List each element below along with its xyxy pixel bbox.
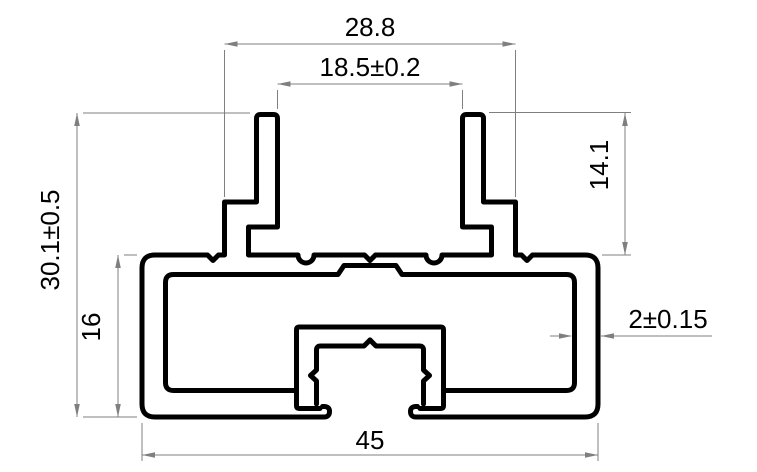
- dim-fin-height-label: 14.1: [584, 140, 614, 191]
- dim-overall-width-label: 45: [356, 425, 385, 455]
- profile-outer-contour: [370, 115, 598, 418]
- dim-overall-width: 45: [142, 423, 598, 461]
- dim-fin-slot-width: 18.5±0.2: [278, 52, 463, 109]
- dim-overall-height-label: 30.1±0.5: [35, 189, 65, 290]
- dim-body-height: 16: [76, 255, 137, 417]
- dim-fin-outer-width: 28.8: [225, 12, 516, 197]
- dim-fin-slot-width-label: 18.5±0.2: [319, 52, 420, 82]
- channel-outer-wall: [370, 327, 444, 409]
- profile-mirrored-half: [142, 115, 370, 418]
- technical-drawing-canvas: 28.8 18.5±0.2 14.1 30.1±0.5 16 45: [0, 0, 757, 472]
- dim-body-height-label: 16: [76, 313, 106, 342]
- profile-outline: [142, 115, 598, 418]
- dim-wall-thickness-label: 2±0.15: [628, 304, 707, 334]
- extrusion-profile-drawing: 28.8 18.5±0.2 14.1 30.1±0.5 16 45: [0, 0, 757, 472]
- channel-inner-wall: [370, 340, 430, 404]
- dim-fin-height: 14.1: [489, 113, 631, 256]
- dim-fin-outer-width-label: 28.8: [345, 12, 396, 42]
